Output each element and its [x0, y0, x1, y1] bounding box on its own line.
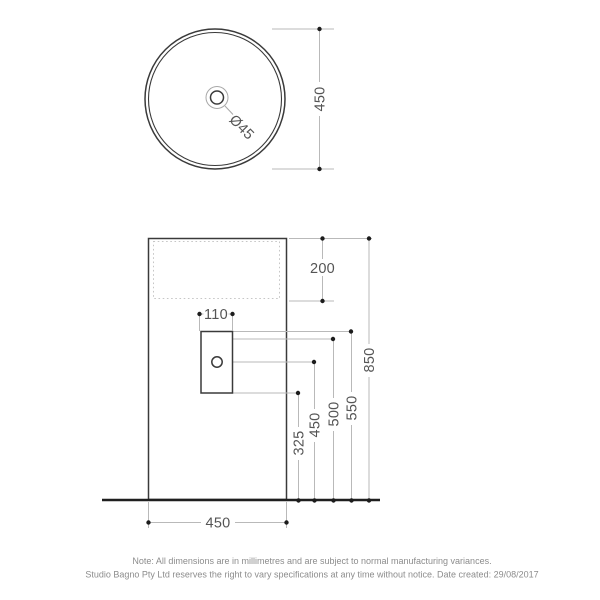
dimension-dot [296, 391, 300, 395]
drain-leader-line [225, 106, 233, 115]
bowl-depth-label: 200 [310, 261, 335, 277]
dimension-dot [312, 360, 316, 364]
height-label-450: 450 [308, 412, 324, 437]
base-width-label: 450 [205, 516, 230, 532]
dimension-dot [284, 520, 288, 524]
dimension-dot [146, 520, 150, 524]
bowl-hidden-dashed-rect [154, 242, 280, 299]
front-view: 200 110 325 450 500 550 850 [102, 236, 380, 531]
dimension-dot [320, 236, 324, 240]
dimension-dot [331, 337, 335, 341]
height-label-850: 850 [362, 347, 378, 372]
dimension-dot [349, 329, 353, 333]
dimension-dot [349, 498, 353, 502]
dimension-dot [230, 312, 234, 316]
tap-hole-circle [212, 357, 222, 367]
note-line-2: Studio Bagno Pty Ltd reserves the right … [85, 570, 538, 580]
dimension-dot [331, 498, 335, 502]
height-label-500: 500 [327, 401, 343, 426]
dimension-dot [367, 236, 371, 240]
drain-inner-circle [211, 91, 224, 104]
top-view-height-dim-label: 450 [313, 86, 329, 111]
dimension-dot [317, 27, 321, 31]
note-line-1: Note: All dimensions are in millimetres … [132, 556, 491, 566]
height-label-325: 325 [292, 430, 308, 455]
footnote: Note: All dimensions are in millimetres … [85, 556, 538, 580]
tap-width-label: 110 [204, 307, 228, 323]
height-label-550: 550 [345, 395, 361, 420]
dimension-dot [296, 498, 300, 502]
dimension-dot [197, 312, 201, 316]
top-view: Ø45 450 [145, 27, 334, 171]
basin-technical-drawing-page: Ø45 450 [0, 0, 600, 600]
dimension-dot [317, 167, 321, 171]
dimension-dot [320, 299, 324, 303]
technical-drawing-svg: Ø45 450 [0, 0, 600, 600]
dimension-dot [367, 498, 371, 502]
dimension-dot [312, 498, 316, 502]
drain-diameter-label: Ø45 [226, 112, 257, 143]
